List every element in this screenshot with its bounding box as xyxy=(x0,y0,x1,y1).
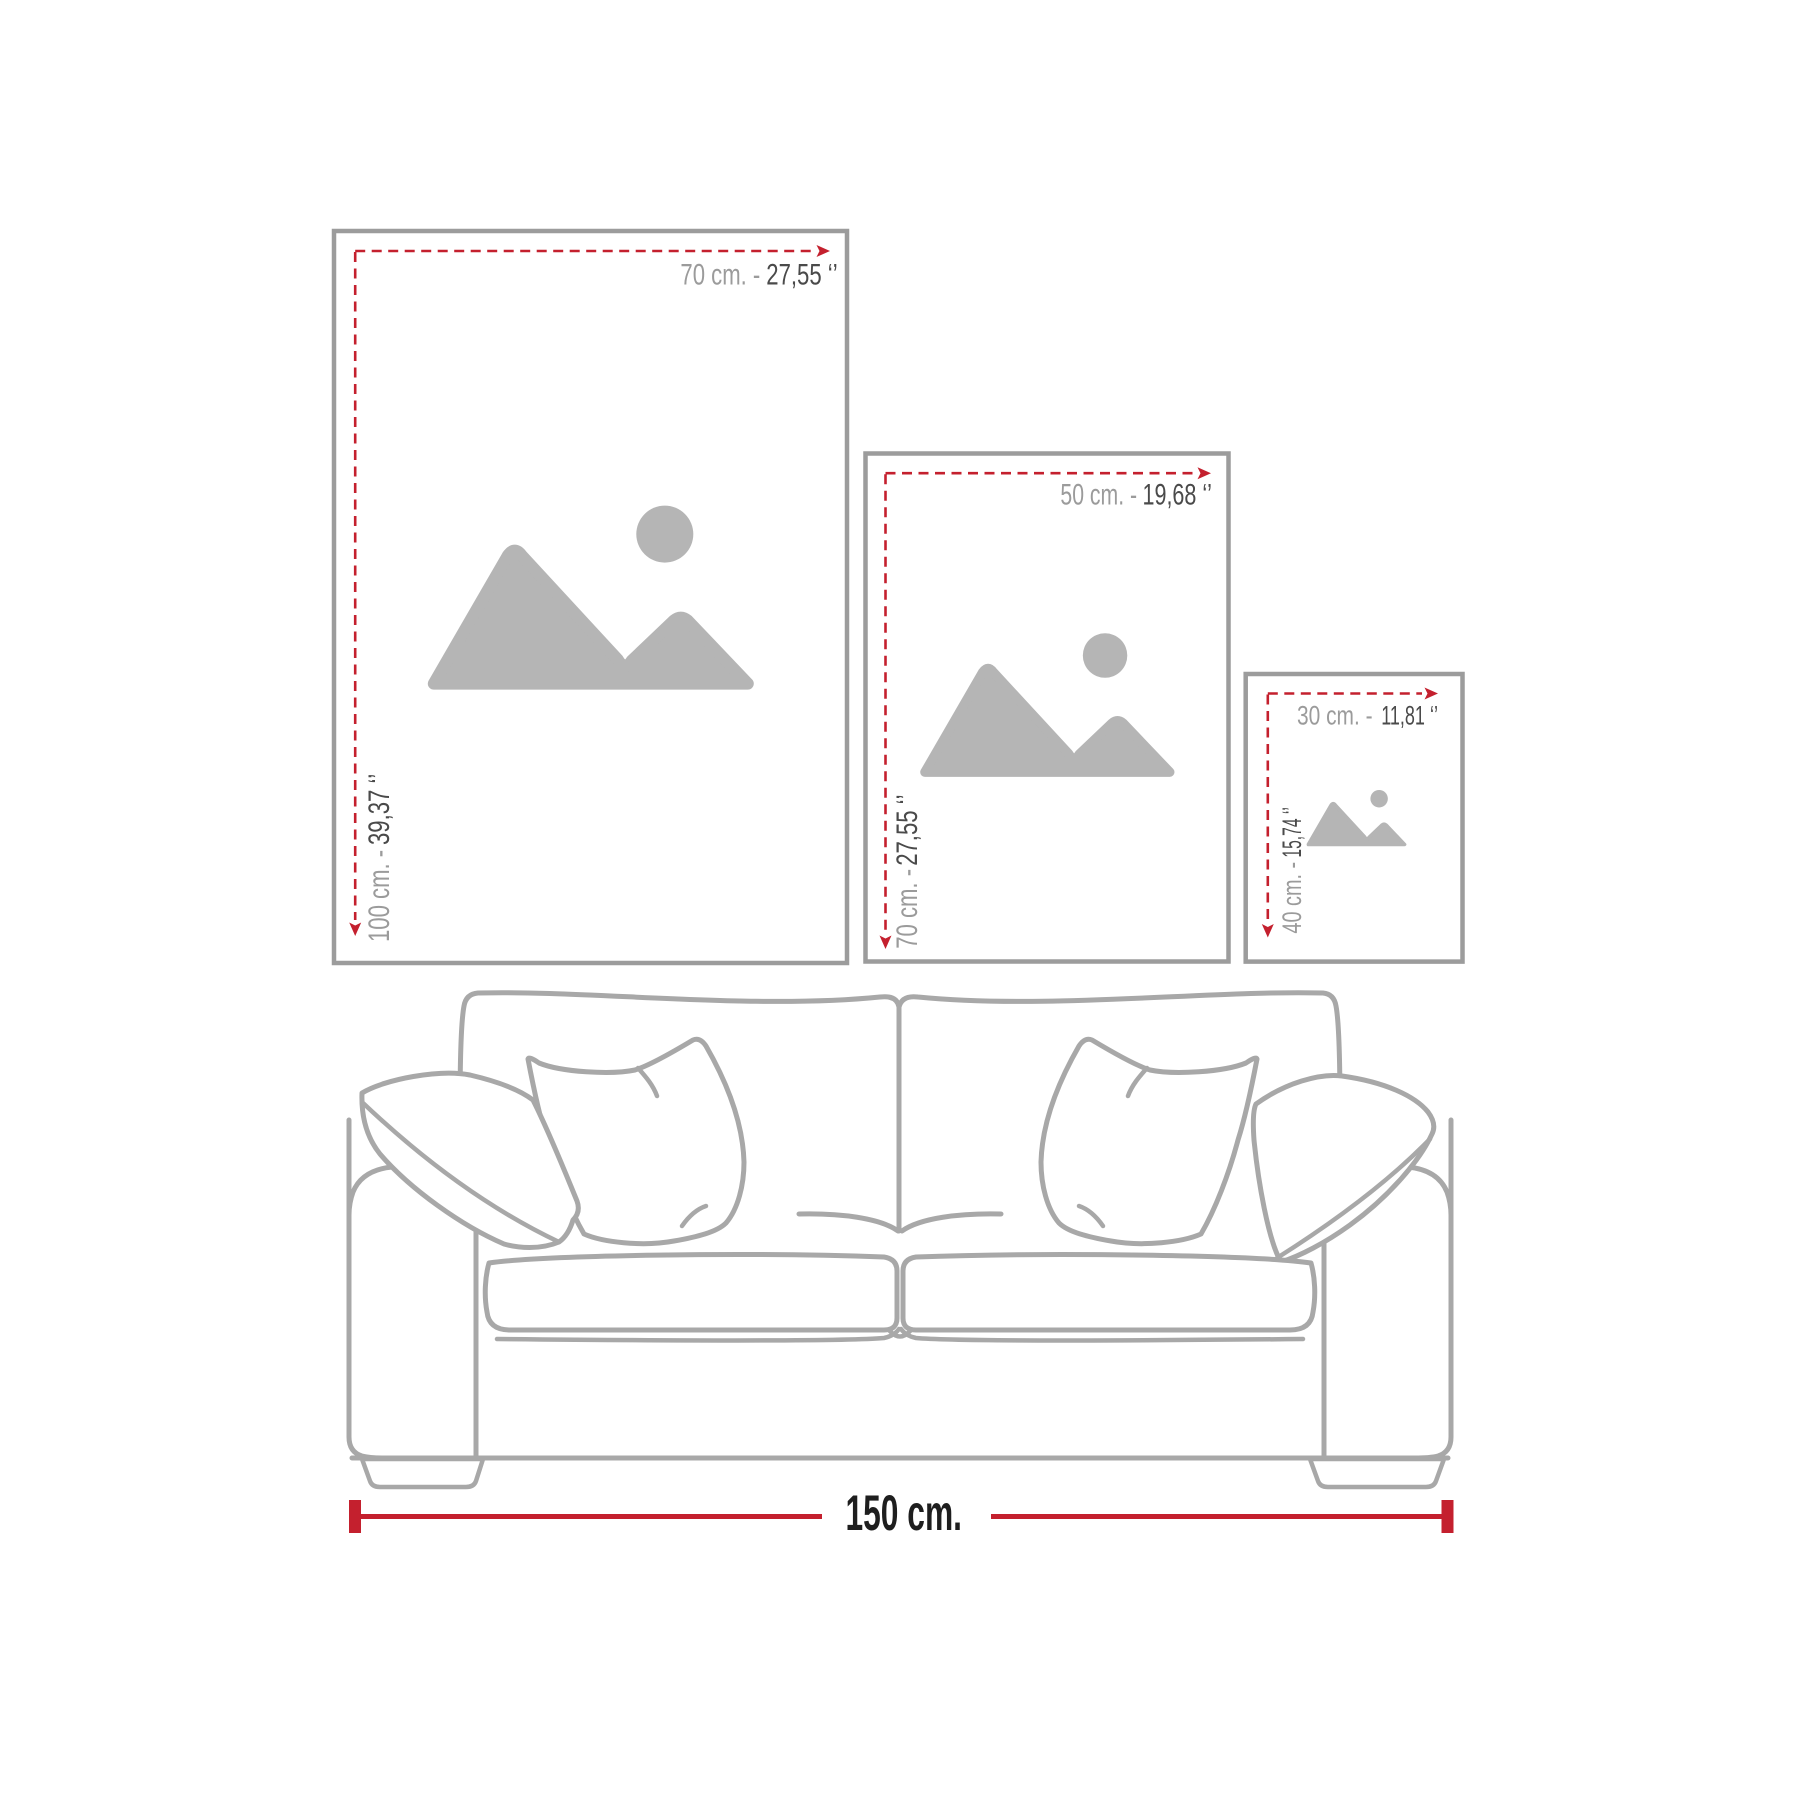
svg-text:30 cm. -: 30 cm. - xyxy=(1297,701,1373,731)
svg-text:150 cm.: 150 cm. xyxy=(846,1485,962,1541)
svg-text:39,37 ‘’: 39,37 ‘’ xyxy=(362,774,396,845)
svg-text:27,55 ‘’: 27,55 ‘’ xyxy=(766,257,837,291)
svg-text:15,74 ‘’: 15,74 ‘’ xyxy=(1277,807,1307,857)
svg-text:70 cm. -: 70 cm. - xyxy=(890,869,924,949)
svg-text:11,81 ‘’: 11,81 ‘’ xyxy=(1381,700,1438,730)
svg-text:27,55 ‘’: 27,55 ‘’ xyxy=(890,794,924,865)
svg-text:100 cm. -: 100 cm. - xyxy=(362,850,396,942)
svg-text:70 cm. -: 70 cm. - xyxy=(680,257,760,291)
svg-text:40 cm. -: 40 cm. - xyxy=(1277,862,1306,934)
svg-text:50 cm. -: 50 cm. - xyxy=(1060,479,1137,511)
svg-text:19,68 ‘’: 19,68 ‘’ xyxy=(1143,479,1212,511)
